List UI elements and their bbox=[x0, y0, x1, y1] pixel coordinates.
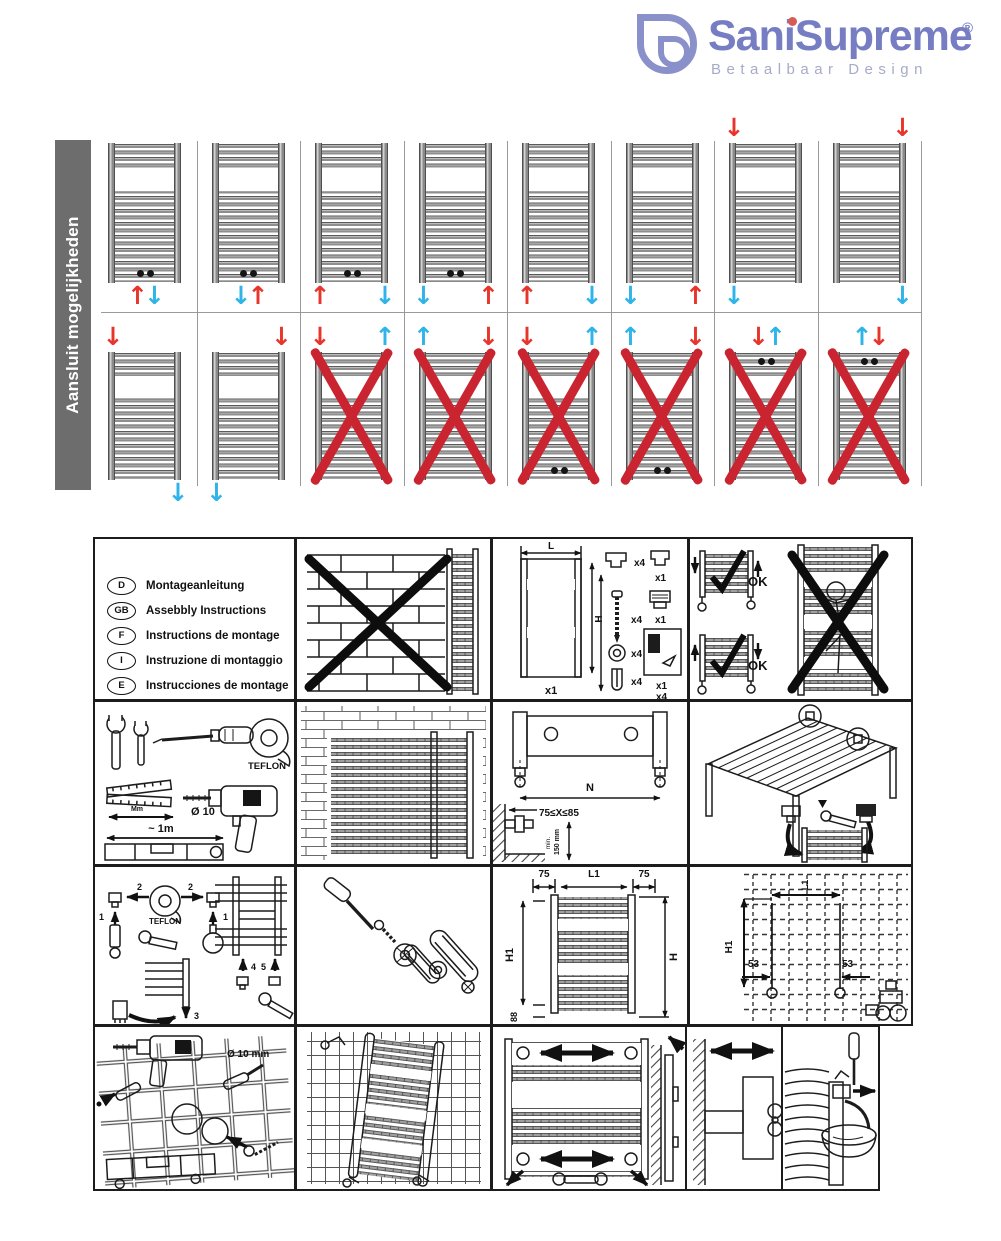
panel-teflon-steps: 1 2 TEFLON 2 1 bbox=[93, 865, 296, 1026]
flow-arrow-red-up: ↑ bbox=[685, 283, 703, 309]
grid-column-separator bbox=[197, 141, 198, 486]
margin-right-label: 75 bbox=[638, 869, 650, 880]
folding-rule-icon: Mm bbox=[107, 780, 173, 817]
flow-arrow-blue-down: ↓ bbox=[375, 283, 393, 309]
table-assembly-drawing bbox=[690, 702, 911, 864]
wall-position-drawing bbox=[297, 702, 490, 864]
radiator-towel-gap bbox=[426, 170, 485, 191]
language-row: GBAssebbly Instructions bbox=[95, 598, 294, 623]
towel-radiator bbox=[833, 143, 906, 283]
flow-arrow-red-down: ↓ bbox=[724, 115, 742, 141]
panel-bleed-radiator bbox=[781, 1025, 880, 1191]
connection-option-cell: ↓↑ bbox=[611, 116, 714, 312]
connection-option-cell: ↑↓ bbox=[507, 116, 610, 312]
language-code-badge: E bbox=[107, 677, 136, 695]
paste-step: 3 bbox=[113, 959, 199, 1023]
panel-anchor-detail bbox=[295, 865, 492, 1026]
radiator-front bbox=[551, 895, 635, 1013]
fit-plugs-step bbox=[782, 800, 876, 862]
anchor-detail-drawing bbox=[297, 867, 490, 1024]
wall-hatch bbox=[693, 1039, 705, 1185]
language-label: Instruzione di montaggio bbox=[146, 655, 283, 667]
air-vent-part: x1 bbox=[650, 591, 670, 626]
brand-i-dot bbox=[788, 17, 797, 26]
tile-wall-dashed bbox=[740, 871, 908, 1021]
manual-qty2: x4 bbox=[656, 692, 668, 699]
manual-qty: x1 bbox=[656, 681, 668, 692]
language-label: Instructions de montage bbox=[146, 630, 280, 642]
screwdriver-icon bbox=[153, 727, 253, 743]
radiator-towel-gap bbox=[115, 170, 174, 191]
h1-label: H1 bbox=[724, 940, 735, 953]
not-allowed-cross bbox=[729, 352, 802, 480]
radiator-bars bbox=[633, 144, 692, 282]
radiator-bars bbox=[840, 144, 899, 282]
connection-possibilities-grid: ↑↓↓↑↑↓↓↑↑↓↓↑↓↓↓↓↓↓↓↓↓↑↑↓↓↑↑↓↓↑↑↓ bbox=[93, 116, 922, 512]
flow-arrow-red-down: ↓ bbox=[748, 324, 766, 350]
connection-point-dot bbox=[447, 270, 454, 277]
radiator-rail bbox=[108, 143, 115, 283]
teflon-label: TEFLON bbox=[248, 761, 286, 772]
right-fitting-step: 1 bbox=[203, 893, 228, 953]
teflon-roll: 2 TEFLON 2 bbox=[127, 882, 203, 926]
connection-option-cell: ↓↓ bbox=[818, 116, 921, 312]
valve-distance-drawing: N 75≤X≤85 150 mm min. bbox=[493, 702, 687, 864]
radiator-rail bbox=[174, 352, 181, 480]
panel-dimensions: 75 L1 75 H1 88 H bbox=[491, 865, 689, 1026]
flow-arrow-red-down: ↓ bbox=[685, 324, 703, 350]
towel-radiator bbox=[626, 143, 699, 283]
connection-option-cell: ↓↑ bbox=[507, 312, 610, 512]
step-1-right: 1 bbox=[223, 912, 228, 922]
flow-arrow-red-down: ↓ bbox=[271, 324, 289, 350]
washer-part: x4 bbox=[609, 645, 643, 661]
language-row: EInstrucciones de montage bbox=[95, 673, 294, 698]
radiator-towel-gap bbox=[115, 376, 174, 395]
connection-option-cell: ↓↑ bbox=[197, 116, 300, 312]
min-label: min. bbox=[545, 837, 552, 849]
step-2-left: 2 bbox=[137, 882, 142, 892]
language-label: Assebbly Instructions bbox=[146, 605, 266, 617]
radiator-curved-bars bbox=[785, 1069, 829, 1180]
grid-column-separator bbox=[507, 141, 508, 486]
bracket-part: x4 bbox=[606, 553, 646, 569]
level-length-label: ~ 1m bbox=[148, 823, 174, 835]
radiator-rail bbox=[381, 143, 388, 283]
panel-valve-distance: N 75≤X≤85 150 mm min. bbox=[491, 700, 689, 866]
registered-mark: ® bbox=[962, 20, 973, 37]
panel-language-list: DMontageanleitung GBAssebbly Instruction… bbox=[93, 537, 296, 701]
grid-column-separator bbox=[300, 141, 301, 486]
screw-icon bbox=[375, 921, 396, 943]
language-code-badge: I bbox=[107, 652, 136, 670]
panel-orientation-safety: OK OK bbox=[688, 537, 913, 701]
connection-point-dot bbox=[344, 270, 351, 277]
connection-option-cell: ↓↓ bbox=[714, 116, 817, 312]
step-5: 5 bbox=[261, 962, 266, 972]
grid-column-separator bbox=[404, 141, 405, 486]
n-label: N bbox=[586, 782, 594, 794]
ok-radiator-1: OK bbox=[695, 551, 768, 611]
language-code-badge: F bbox=[107, 627, 136, 645]
radiator-edge bbox=[447, 549, 478, 694]
l1-label: L1 bbox=[800, 880, 810, 891]
h1-dimension: H1 88 bbox=[504, 901, 545, 1022]
connection-option-cell: ↓↑ bbox=[300, 312, 403, 512]
tools-drawing: TEFLON Mm Ø 10 ~ 1m bbox=[95, 702, 294, 864]
flow-arrow-blue-down: ↓ bbox=[168, 480, 186, 506]
not-allowed-cross bbox=[626, 352, 699, 480]
wall-plug-icon bbox=[401, 942, 446, 986]
flow-arrow-red-down: ↓ bbox=[103, 324, 121, 350]
step-4: 4 bbox=[251, 962, 256, 972]
section-label: Aansluit mogelijkheden bbox=[63, 216, 83, 413]
length-label: L bbox=[548, 541, 554, 552]
radiator-rail bbox=[692, 143, 699, 283]
drilling-drawing: Ø 10 mm bbox=[95, 1027, 294, 1189]
towel-radiator bbox=[212, 143, 285, 283]
flow-arrow-blue-down: ↓ bbox=[892, 283, 910, 309]
wrench-icon bbox=[139, 931, 177, 949]
flow-arrow-red-up: ↑ bbox=[127, 283, 145, 309]
teflon-tape-icon: TEFLON bbox=[248, 719, 290, 772]
flow-arrow-red-down: ↓ bbox=[310, 324, 328, 350]
parts-drawing: L x1 H x4 x4 bbox=[493, 539, 687, 699]
brand-name: SaniSupreme bbox=[708, 12, 972, 61]
hole-diameter-label: Ø 10 mm bbox=[227, 1049, 269, 1060]
panel-parts-list: L x1 H x4 x4 bbox=[491, 537, 689, 701]
h-dimension: H bbox=[639, 897, 680, 1017]
radiator-thumbnail bbox=[521, 559, 581, 677]
connection-point-dot bbox=[147, 270, 154, 277]
radiator-top-view bbox=[513, 712, 667, 790]
radiator-qty: x1 bbox=[545, 685, 557, 697]
logo-droplet-inner bbox=[658, 36, 690, 68]
panel-drill-template: L1 H1 53 53 bbox=[688, 865, 913, 1026]
connection-option-cell: ↓↓ bbox=[197, 312, 300, 512]
towel-radiator bbox=[108, 352, 181, 480]
bleed-drawing bbox=[783, 1027, 878, 1189]
height-label: H bbox=[594, 615, 605, 622]
step-2-right: 2 bbox=[188, 882, 193, 892]
radiator-towel-gap bbox=[219, 376, 278, 395]
towel-radiator bbox=[108, 143, 181, 283]
cap-qty: x1 bbox=[655, 573, 667, 584]
screwdriver-icon bbox=[849, 1033, 859, 1085]
radiator-towel-gap bbox=[322, 170, 381, 191]
connection-point-dot bbox=[240, 270, 247, 277]
language-label: Montageanleitung bbox=[146, 580, 244, 592]
grid-column-separator bbox=[611, 141, 612, 486]
brand-tagline: Betaalbaar Design bbox=[711, 61, 928, 78]
language-row: IInstruzione di montaggio bbox=[95, 648, 294, 673]
bracket-side-view bbox=[705, 1077, 781, 1159]
right-53-label: 53 bbox=[842, 959, 854, 970]
h1-label: H1 bbox=[504, 948, 516, 962]
flow-arrow-red-down: ↓ bbox=[869, 324, 887, 350]
ok-radiator-2: OK bbox=[695, 635, 768, 694]
radiator-towel-gap bbox=[840, 170, 899, 191]
flow-arrow-red-down: ↓ bbox=[478, 324, 496, 350]
flow-arrow-blue-up: ↑ bbox=[620, 324, 638, 350]
towel-radiator bbox=[419, 143, 492, 283]
rule-unit-label: Mm bbox=[131, 806, 143, 813]
radiator-towel-gap bbox=[736, 170, 795, 191]
radiator-towel-gap bbox=[219, 170, 278, 191]
radiator-bars bbox=[219, 353, 278, 479]
forbidden-wall-drawing bbox=[297, 539, 490, 699]
radiator-bars bbox=[426, 144, 485, 282]
section-label-bar: Aansluit mogelijkheden bbox=[55, 140, 91, 490]
ok-label-2: OK bbox=[748, 658, 768, 673]
vent-qty: x1 bbox=[655, 615, 667, 626]
not-allowed-cross bbox=[419, 352, 492, 480]
step-1-left: 1 bbox=[99, 912, 104, 922]
panel-adjust-level bbox=[491, 1025, 687, 1191]
margin-left-label: 75 bbox=[538, 869, 550, 880]
connection-point-dot bbox=[457, 270, 464, 277]
flow-arrow-blue-down: ↓ bbox=[144, 283, 162, 309]
connection-point-dot bbox=[354, 270, 361, 277]
radiator-bars bbox=[322, 144, 381, 282]
towel-radiator bbox=[212, 352, 285, 480]
radiator-bars bbox=[115, 144, 174, 282]
flow-arrow-red-down: ↓ bbox=[892, 115, 910, 141]
not-allowed-cross bbox=[833, 352, 906, 480]
manual-page: SaniSupreme ® Betaalbaar Design Aansluit… bbox=[0, 0, 1001, 1241]
dimension-H: H bbox=[592, 563, 605, 673]
grid-column-separator bbox=[818, 141, 819, 486]
bowl bbox=[822, 1125, 876, 1157]
connection-option-cell: ↑↓ bbox=[93, 116, 196, 312]
wall-anchor-part: x4 bbox=[612, 669, 643, 690]
flow-arrow-blue-up: ↑ bbox=[413, 324, 431, 350]
connection-option-cell: ↑↓ bbox=[404, 312, 507, 512]
plug-steps: 4 5 bbox=[215, 877, 293, 1018]
radiator-rail bbox=[278, 352, 285, 480]
radiator-rail bbox=[212, 143, 219, 283]
drill-diameter-label: Ø 10 bbox=[191, 806, 215, 818]
plug-cap-part: x1 bbox=[651, 551, 669, 584]
flow-arrow-blue-up: ↑ bbox=[375, 324, 393, 350]
flow-arrow-blue-down: ↓ bbox=[231, 283, 249, 309]
washer-qty: x4 bbox=[631, 649, 643, 660]
flow-arrow-blue-down: ↓ bbox=[620, 283, 638, 309]
panel-drilling: Ø 10 mm bbox=[93, 1025, 296, 1191]
teflon-steps-drawing: 1 2 TEFLON 2 1 bbox=[95, 867, 294, 1024]
radiator-bars bbox=[529, 144, 588, 282]
panel-wall-position bbox=[295, 700, 492, 866]
towel-radiator bbox=[729, 143, 802, 283]
anchor-qty: x4 bbox=[631, 677, 643, 688]
radiator-rail bbox=[522, 143, 529, 283]
manual-part: x1 x4 bbox=[644, 629, 681, 699]
flow-arrow-blue-down: ↓ bbox=[724, 283, 742, 309]
grid-column-separator bbox=[714, 141, 715, 486]
language-label: Instrucciones de montage bbox=[146, 680, 289, 692]
flow-arrow-blue-up: ↑ bbox=[765, 324, 783, 350]
l1-label: L1 bbox=[588, 869, 600, 880]
language-code-badge: GB bbox=[107, 602, 136, 620]
panel-table-assembly bbox=[688, 700, 913, 866]
h-label: H bbox=[668, 953, 680, 961]
radiator-rail bbox=[833, 143, 840, 283]
floor-offset-label: 88 bbox=[509, 1012, 519, 1022]
language-code-badge: D bbox=[107, 577, 136, 595]
orientation-drawing: OK OK bbox=[690, 539, 911, 699]
connection-option-cell: ↑↓ bbox=[300, 116, 403, 312]
connection-option-cell: ↓↓ bbox=[93, 312, 196, 512]
radiator-rail bbox=[795, 143, 802, 283]
flow-arrow-red-down: ↓ bbox=[517, 324, 535, 350]
radiator-bars bbox=[219, 144, 278, 282]
radiator-rail bbox=[588, 143, 595, 283]
flow-arrow-blue-up: ↑ bbox=[582, 324, 600, 350]
flow-arrow-red-up: ↑ bbox=[248, 283, 266, 309]
radiator-closeup bbox=[327, 730, 483, 860]
flow-arrow-blue-down: ↓ bbox=[582, 283, 600, 309]
ok-label-1: OK bbox=[748, 574, 768, 589]
panel-forbidden-wall-mount bbox=[295, 537, 492, 701]
flow-arrow-blue-up: ↑ bbox=[852, 324, 870, 350]
grid-column-separator bbox=[921, 141, 922, 486]
step-3: 3 bbox=[194, 1011, 199, 1021]
connection-option-cell: ↑↓ bbox=[818, 312, 921, 512]
panel-required-tools: TEFLON Mm Ø 10 ~ 1m bbox=[93, 700, 296, 866]
dimension-L: L bbox=[521, 541, 581, 560]
wrench-icon bbox=[107, 711, 125, 769]
radiator-rail bbox=[729, 143, 736, 283]
connection-option-cell: ↑↓ bbox=[611, 312, 714, 512]
flow-arrow-blue-down: ↓ bbox=[413, 283, 431, 309]
flow-arrow-blue-down: ↓ bbox=[206, 480, 224, 506]
flow-arrow-red-up: ↑ bbox=[310, 283, 328, 309]
flow-arrow-red-up: ↑ bbox=[478, 283, 496, 309]
dimension-N: N bbox=[520, 782, 660, 798]
drill-icon bbox=[183, 786, 277, 853]
radiator-bars bbox=[736, 144, 795, 282]
not-allowed-cross bbox=[522, 352, 595, 480]
screwdriver-icon bbox=[322, 876, 373, 929]
bracket-qty: x4 bbox=[634, 558, 646, 569]
flow-arrow-red-up: ↑ bbox=[517, 283, 535, 309]
left-53-label: 53 bbox=[748, 959, 760, 970]
screw-qty: x4 bbox=[631, 615, 643, 626]
radiator-rail bbox=[315, 143, 322, 283]
panel-bracket-depth bbox=[685, 1025, 783, 1191]
radiator-rail bbox=[626, 143, 633, 283]
language-row: FInstructions de montage bbox=[95, 623, 294, 648]
top-dimension-line: 75 L1 75 bbox=[533, 869, 655, 893]
language-row: DMontageanleitung bbox=[95, 573, 294, 598]
left-fitting-step: 1 bbox=[99, 893, 121, 958]
radiator-bars bbox=[115, 353, 174, 479]
dimensions-drawing: 75 L1 75 H1 88 H bbox=[493, 867, 687, 1024]
wall-distance-range: 75≤X≤85 bbox=[539, 808, 579, 819]
no-climbing-radiator bbox=[792, 545, 884, 695]
connection-option-cell: ↓↑ bbox=[714, 312, 817, 512]
radiator-rail bbox=[174, 143, 181, 283]
not-allowed-cross bbox=[315, 352, 388, 480]
radiator-towel-gap bbox=[529, 170, 588, 191]
bracket-depth-drawing bbox=[687, 1027, 781, 1189]
connection-point-dot bbox=[137, 270, 144, 277]
panel-hang-on-wall bbox=[295, 1025, 492, 1191]
drill-template-drawing: L1 H1 53 53 bbox=[690, 867, 911, 1024]
radiator-rail bbox=[278, 143, 285, 283]
connection-point-dot bbox=[250, 270, 257, 277]
radiator-rail bbox=[108, 352, 115, 480]
height-from-floor: 150 mm bbox=[554, 829, 561, 855]
radiator-rail bbox=[899, 143, 906, 283]
radiator-towel-gap bbox=[633, 170, 692, 191]
screw-part: x4 bbox=[612, 591, 643, 643]
side-view-hang bbox=[651, 1037, 683, 1185]
spirit-level-icon: ~ 1m bbox=[105, 823, 223, 860]
wrench-small-icon bbox=[134, 718, 148, 765]
teflon-label: TEFLON bbox=[149, 917, 181, 926]
connection-option-cell: ↓↑ bbox=[404, 116, 507, 312]
hang-on-wall-drawing bbox=[297, 1027, 490, 1189]
towel-radiator bbox=[315, 143, 388, 283]
adjust-level-drawing bbox=[493, 1027, 685, 1189]
radiator-rail bbox=[212, 352, 219, 480]
towel-radiator bbox=[522, 143, 595, 283]
radiator-rail bbox=[419, 143, 426, 283]
wall-clearance-detail: 75≤X≤85 150 mm min. bbox=[493, 804, 579, 862]
radiator-rail bbox=[485, 143, 492, 283]
